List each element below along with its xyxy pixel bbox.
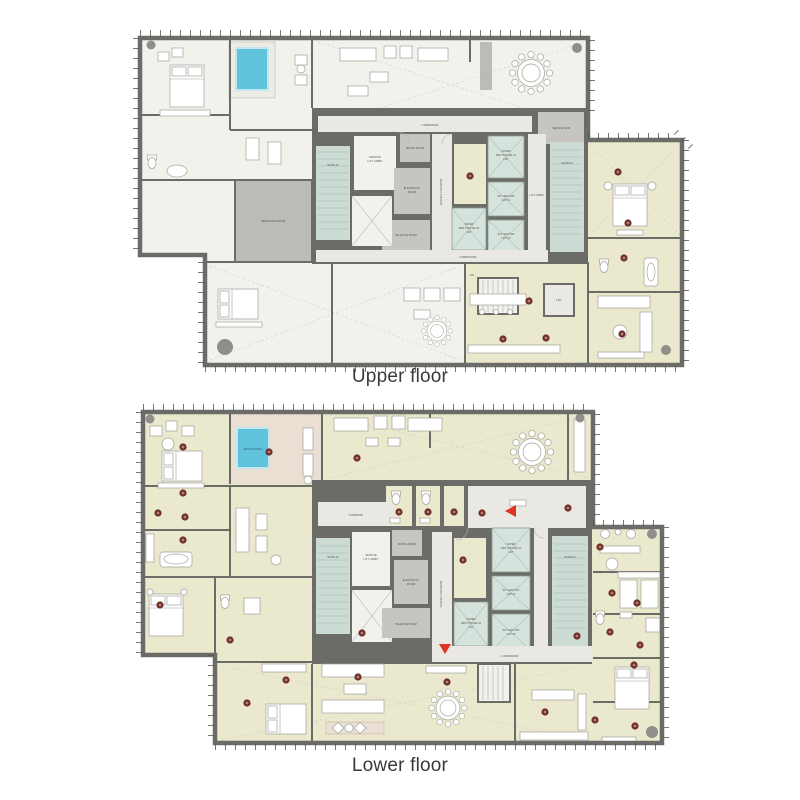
room-label-se01-lift: SKY EDITION: [503, 589, 520, 592]
room-label-service-wm: SERVICE W/M: [552, 127, 570, 130]
svg-text:LIFT 01: LIFT 01: [506, 593, 516, 596]
room-label-sp02-lift: SUPER: [464, 223, 473, 226]
room-label-telecom-room: TELECOM ROOM: [395, 623, 417, 626]
svg-text:PENTHOUSE 02: PENTHOUSE 02: [461, 622, 482, 625]
svg-text:LIFT: LIFT: [503, 158, 509, 161]
svg-text:LIFT: LIFT: [508, 551, 514, 554]
svg-text:LIFT LOBBY: LIFT LOBBY: [363, 558, 378, 561]
room-label-corridor-bottom: CORRIDOR: [459, 255, 477, 259]
svg-text:LIFT 02: LIFT 02: [506, 633, 516, 636]
svg-text:ROOM: ROOM: [407, 583, 415, 586]
floor-plans-page: CORRIDOR CORRIDOR STAIR 01 STAIR 02 SERV…: [0, 0, 800, 800]
room-label-lift-lobby: LIFT LOBBY: [529, 194, 544, 197]
svg-text:LIFT: LIFT: [468, 626, 474, 629]
room-label-electrical-room: ELECTRICAL: [404, 187, 421, 190]
upper-pool: [229, 42, 275, 98]
svg-text:LIFT 02: LIFT 02: [501, 237, 511, 240]
lower-private-stair: [478, 664, 510, 702]
room-label-sp01-lift: SUPER: [506, 543, 515, 546]
room-label-corridor-bottom: CORRIDOR: [501, 654, 519, 658]
svg-text:PENTHOUSE 01: PENTHOUSE 01: [496, 154, 517, 157]
room-label-stair-01: STAIR 01: [327, 556, 339, 559]
svg-text:ROOM: ROOM: [408, 191, 416, 194]
upper-floor-caption: Upper floor: [0, 366, 800, 388]
svg-text:PENTHOUSE 02: PENTHOUSE 02: [459, 227, 480, 230]
room-label-jacuzzi-pool: JACUZZI POOL: [243, 447, 263, 451]
room-label-electrical-room: ELECTRICAL: [403, 579, 420, 582]
room-label-se02-lift: SKY EDITION: [498, 233, 515, 236]
room-label-sp01-lift: SUPER: [501, 150, 510, 153]
svg-text:LIFT 01: LIFT 01: [501, 199, 511, 202]
lower-floor-plan: JACUZZI POOL: [128, 400, 684, 756]
room-label-service-room: SERVICE ROOM: [261, 219, 286, 223]
room-label-service-corridor: SERVICE CORRIDOR: [440, 178, 443, 205]
room-label-stair-02: STAIR 02: [564, 556, 576, 559]
room-label-se01-lift: SKY EDITION: [498, 195, 515, 198]
room-label-sp02-lift: SUPER: [466, 618, 475, 621]
room-label-waste-room: WASTE ROOM: [406, 147, 424, 150]
room-label-se02-lift: SKY EDITION: [503, 629, 520, 632]
room-label-service-lift-lobby: SERVICE: [369, 156, 381, 159]
room-label-stair-01: STAIR 01: [327, 164, 339, 167]
svg-text:PENTHOUSE 01: PENTHOUSE 01: [501, 547, 522, 550]
upper-core: [312, 108, 588, 264]
room-label-dn: DN: [470, 274, 474, 277]
room-label-service-corridor: SERVICE CORRIDOR: [440, 580, 443, 607]
lower-core: [312, 480, 592, 664]
room-label-corridor-top: CORRIDOR: [349, 514, 364, 517]
room-label-service-lift-lobby: SERVICE: [365, 554, 377, 557]
room-label-stair-02: STAIR 02: [561, 162, 573, 165]
room-label-waste-room: WASTE ROOM: [398, 543, 416, 546]
svg-text:LIFT: LIFT: [466, 231, 472, 234]
svg-text:LIFT LOBBY: LIFT LOBBY: [367, 160, 382, 163]
room-label-lift: LIFT: [556, 299, 562, 302]
room-label-telecom-room: TELECOM ROOM: [395, 234, 417, 237]
upper-floor-plan: CORRIDOR CORRIDOR STAIR 01 STAIR 02 SERV…: [128, 6, 694, 372]
room-label-corridor-top: CORRIDOR: [421, 123, 439, 127]
lower-floor-caption: Lower floor: [0, 755, 800, 777]
